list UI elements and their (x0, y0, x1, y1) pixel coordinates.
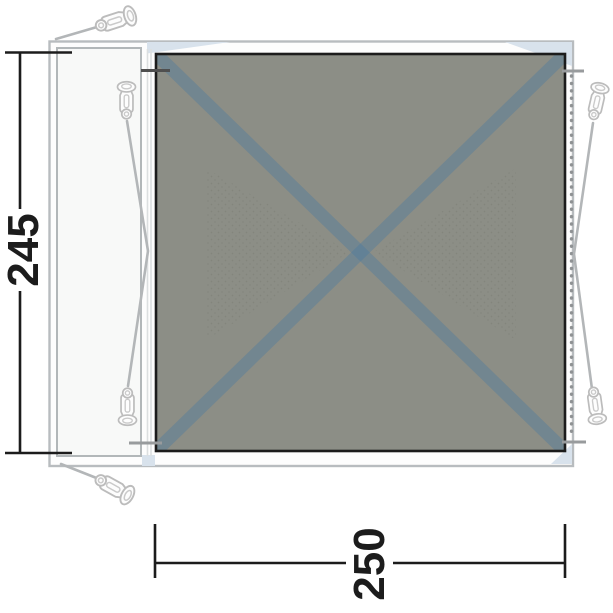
tent-peg-icon (584, 81, 610, 121)
width-dimension-label: 250 (348, 527, 392, 600)
diagram-canvas (0, 0, 613, 613)
footprint-diagram: 245 250 (0, 0, 613, 613)
tent-peg-icon (91, 469, 137, 507)
guy-line-top-left (56, 27, 97, 39)
tent-peg-icon (584, 386, 607, 425)
tent-peg-icon (93, 5, 139, 37)
height-dimension-label: 245 (2, 213, 46, 286)
main-ground-panel (156, 54, 565, 451)
fold-accent-bottom-left (142, 455, 155, 466)
guy-line-right (574, 123, 593, 389)
